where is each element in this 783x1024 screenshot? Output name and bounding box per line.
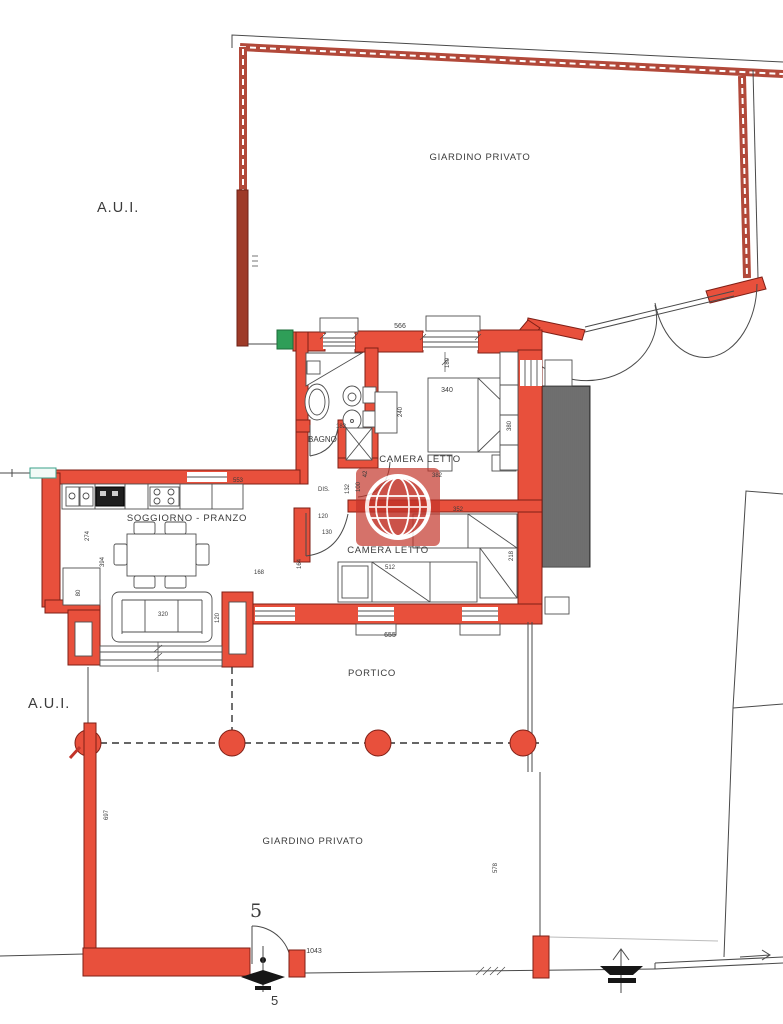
dim-218: 218 xyxy=(509,550,515,561)
left-garden-wall xyxy=(237,190,248,346)
dining-table xyxy=(127,534,196,576)
column-4 xyxy=(510,730,536,756)
dim-380: 380 xyxy=(507,420,513,431)
toilet xyxy=(343,386,361,406)
kitchen-wall xyxy=(42,470,300,484)
gate-number-top: 5 xyxy=(250,900,262,922)
dim-130: 130 xyxy=(322,530,333,536)
globe-watermark-icon xyxy=(356,468,440,546)
garden-south-wall xyxy=(83,948,250,976)
dim-320: 320 xyxy=(158,612,169,618)
dim-168: 168 xyxy=(254,570,265,576)
dim-132: 132 xyxy=(345,483,351,494)
teal-marker xyxy=(30,468,56,478)
dim-182: 182 xyxy=(336,424,347,430)
dim-100: 100 xyxy=(356,481,362,492)
gate-number-bottom: 5 xyxy=(271,993,278,1008)
dim-566: 566 xyxy=(394,323,406,330)
dim-512: 512 xyxy=(385,565,396,571)
wardrobe xyxy=(500,352,518,470)
dim-164: 164 xyxy=(297,558,303,569)
dim-394: 394 xyxy=(100,556,106,567)
dim-578: 578 xyxy=(493,862,499,873)
room-label-bedroom1: CAMERA LETTO xyxy=(379,454,461,465)
dim-120b: 120 xyxy=(215,612,221,623)
dim-352: 352 xyxy=(453,507,464,513)
dim-274: 274 xyxy=(85,530,91,541)
garden-west-wall xyxy=(84,723,96,952)
label-aui-bottom: A.U.I. xyxy=(28,696,70,712)
bed-b xyxy=(338,562,477,602)
dim-655: 655 xyxy=(384,632,396,639)
room-label-hall: DIS. xyxy=(318,487,330,493)
dim-1043: 1043 xyxy=(306,948,322,955)
room-label-bedroom2: CAMERA LETTO xyxy=(347,545,429,556)
dim-180: 180 xyxy=(445,357,451,368)
room-label-garden-bottom: GIARDINO PRIVATO xyxy=(263,836,364,847)
dresser xyxy=(375,392,397,433)
kitchen-appliance-dark xyxy=(96,487,124,506)
floor-plan-canvas: A.U.I. A.U.I. GIARDINO PRIVATO GIARDINO … xyxy=(0,0,783,1024)
garden-east-post xyxy=(533,936,549,978)
dining-set xyxy=(114,522,209,588)
dim-240: 240 xyxy=(398,406,404,417)
column-3 xyxy=(365,730,391,756)
column-2 xyxy=(219,730,245,756)
room-label-portico: PORTICO xyxy=(348,668,396,679)
east-wall xyxy=(518,350,542,622)
dim-120: 120 xyxy=(318,514,329,520)
dim-42: 42 xyxy=(363,470,369,477)
dim-80: 80 xyxy=(76,589,82,596)
hatched-area xyxy=(541,386,590,567)
kitchen-counter xyxy=(62,484,243,509)
dim-553: 553 xyxy=(233,478,244,484)
portico-area xyxy=(70,622,540,772)
dim-697: 697 xyxy=(104,809,110,820)
garden-gate-arc xyxy=(252,926,291,965)
south-wall xyxy=(253,604,542,624)
room-label-living: SOGGIORNO - PRANZO xyxy=(127,513,247,524)
room-label-garden-top: GIARDINO PRIVATO xyxy=(430,152,531,163)
west-wall xyxy=(42,473,60,607)
green-marker xyxy=(277,330,293,349)
entrance-arrow-icon xyxy=(600,949,643,993)
dim-382: 382 xyxy=(432,473,443,479)
appliance-box xyxy=(63,568,100,605)
room-label-bathroom: BAGNO xyxy=(308,435,337,444)
label-aui-top: A.U.I. xyxy=(97,200,139,216)
dim-340: 340 xyxy=(441,387,453,394)
